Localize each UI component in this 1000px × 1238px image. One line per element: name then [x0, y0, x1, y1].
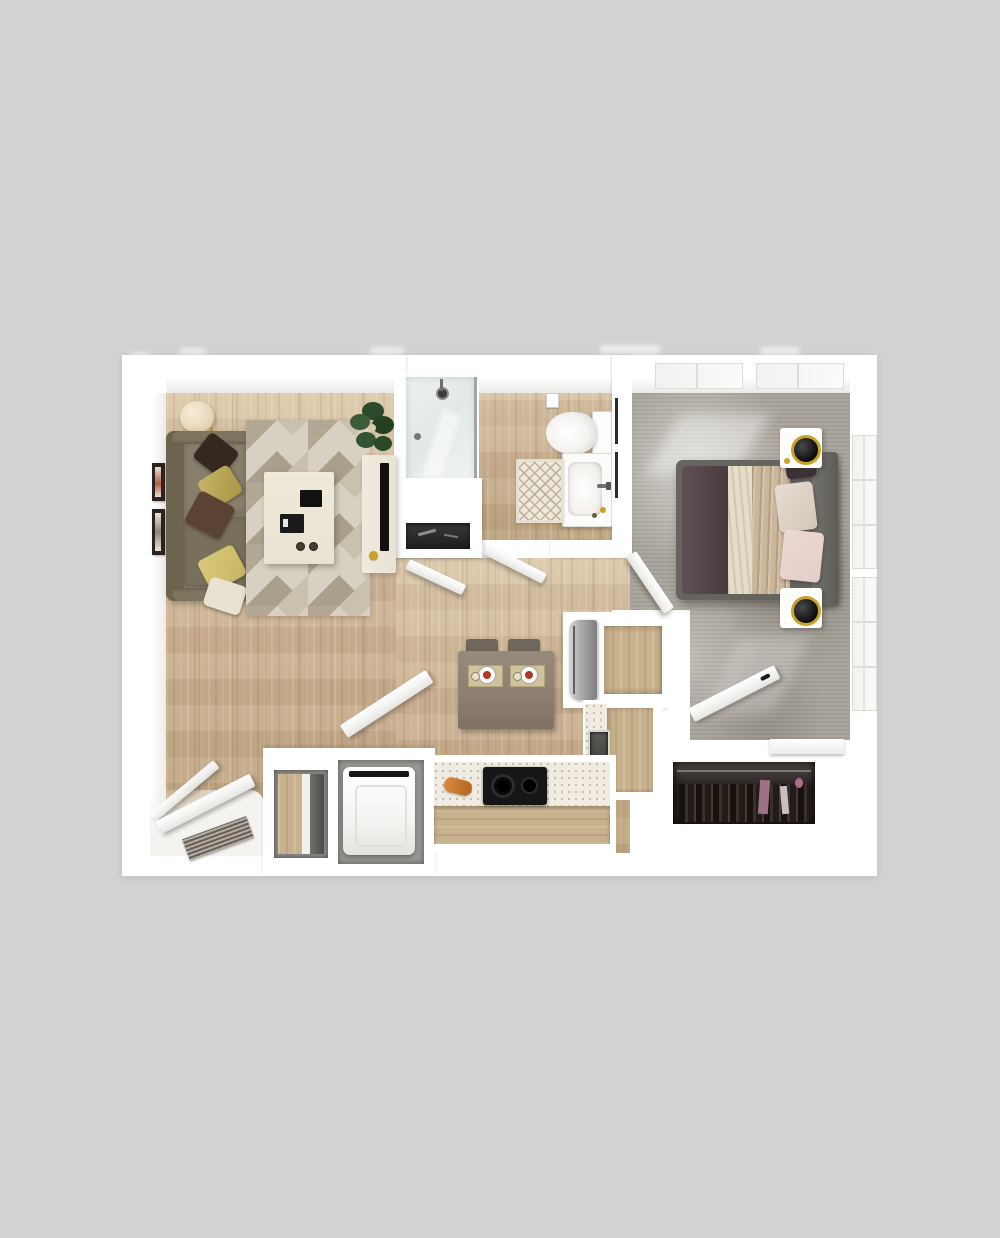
- shower-handle: [414, 433, 421, 440]
- ceiling-window: [756, 363, 844, 389]
- render-artifact: [760, 347, 800, 355]
- shelf-interior: [278, 774, 302, 854]
- window-mullion: [863, 436, 865, 568]
- bed-blanket: [682, 466, 730, 594]
- sphere-lamp: [791, 596, 821, 626]
- decor-gold-bowl: [369, 551, 378, 560]
- open-cabinet-nook: [604, 626, 662, 694]
- wall-art-frame: [152, 509, 165, 555]
- soap-accessory: [600, 507, 606, 513]
- towel-bar: [615, 398, 618, 444]
- closet-rail: [677, 770, 811, 772]
- shelf-shadow: [310, 774, 324, 854]
- bed-pillow: [779, 529, 824, 583]
- plant-leaf: [374, 436, 392, 451]
- top-wall-face: [166, 377, 854, 393]
- floorplan: [122, 355, 877, 876]
- potted-plant: [348, 400, 396, 454]
- bath-mat: [516, 459, 564, 523]
- window-mullion: [797, 364, 799, 388]
- refrigerator: [569, 620, 597, 700]
- burner-large: [491, 774, 515, 798]
- page-background: { "image": { "kind": "3d-floorplan-rende…: [0, 0, 1000, 1238]
- food: [483, 671, 491, 679]
- faucet-base: [606, 482, 611, 490]
- ceiling-window: [655, 363, 743, 389]
- door-handle: [760, 673, 771, 681]
- bedroom-closet-interior: [673, 762, 815, 824]
- wall-window: [852, 435, 877, 569]
- wall-art-print: [155, 467, 161, 497]
- bath-south-wall-right: [550, 540, 632, 558]
- vanity: [562, 453, 612, 527]
- wall-window: [852, 577, 877, 711]
- fridge-handle: [573, 626, 575, 694]
- render-artifact: [180, 348, 206, 355]
- washer-control-panel: [349, 771, 409, 777]
- headboard: [812, 452, 838, 606]
- sink-basin: [568, 462, 602, 516]
- coffee-table: [264, 472, 334, 564]
- cup: [513, 672, 522, 681]
- wall-art-frame: [152, 463, 165, 501]
- plate: [521, 667, 537, 683]
- cup: [296, 542, 305, 551]
- washer-opening: [338, 760, 424, 864]
- hanging-clothes: [679, 784, 809, 822]
- plate: [479, 667, 495, 683]
- towel-bar: [615, 452, 618, 498]
- wall-art-print: [155, 513, 161, 551]
- window-mullion: [696, 364, 698, 388]
- render-artifact: [600, 345, 660, 354]
- tv-console: [362, 455, 396, 573]
- washer: [343, 767, 415, 855]
- stored-item-glint: [418, 529, 436, 537]
- stored-item-glint: [444, 534, 458, 538]
- render-artifact: [370, 347, 404, 355]
- utility-niche-opening: [406, 523, 470, 549]
- utility-closet: [396, 478, 482, 558]
- decor-item: [784, 458, 790, 464]
- shower-arm: [440, 379, 443, 391]
- closet-bench-shelf: [770, 739, 844, 754]
- bottom-wall: [122, 853, 877, 876]
- window-mullion: [863, 578, 865, 710]
- plant-leaf: [350, 414, 370, 430]
- shelf-divider: [302, 774, 310, 854]
- hanging-garment-pink: [795, 778, 803, 788]
- kitchen-counter-south: [428, 755, 616, 853]
- cooktop: [483, 767, 547, 805]
- nightstand: [780, 588, 822, 628]
- fridge-enclosure: [563, 612, 670, 708]
- book-stack: [300, 490, 322, 507]
- cup: [309, 542, 318, 551]
- cup: [471, 672, 480, 681]
- glass-reflection: [422, 410, 461, 482]
- toilet-bowl: [546, 412, 596, 454]
- cabinet-front: [434, 806, 610, 844]
- burner-small: [521, 777, 538, 794]
- washer-lid: [355, 785, 407, 847]
- bath-bedroom-wall: [612, 355, 632, 545]
- bed-sheet-cream: [728, 466, 754, 594]
- tv: [380, 463, 389, 551]
- soap-accessory: [592, 513, 597, 518]
- nightstand: [780, 428, 822, 468]
- plant-pot: [368, 424, 376, 432]
- tablet: [280, 514, 304, 533]
- sphere-lamp: [791, 435, 821, 465]
- food: [525, 671, 533, 679]
- dining-table: [458, 651, 554, 729]
- laundry-closet: [263, 748, 435, 876]
- tablet-screen-glow: [283, 519, 288, 527]
- laundry-shelf-opening: [274, 770, 328, 858]
- sofa-backrest: [166, 431, 184, 601]
- bed-pillow: [774, 481, 818, 533]
- toilet-paper-holder: [546, 393, 559, 408]
- plant-leaf: [356, 432, 376, 448]
